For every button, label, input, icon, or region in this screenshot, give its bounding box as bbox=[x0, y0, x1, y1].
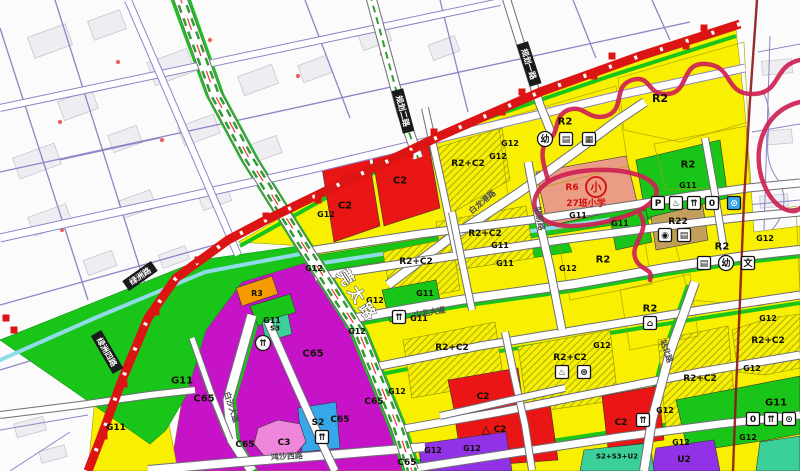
zone-label: S2+S3+U2 bbox=[596, 452, 638, 460]
zone-label: G12 bbox=[743, 364, 761, 373]
railway-tie bbox=[315, 197, 322, 204]
zone-label: G12 bbox=[501, 139, 519, 148]
zone-label: U2 bbox=[677, 455, 691, 465]
railway-tie bbox=[499, 109, 506, 116]
public-toilet-icon-glyph: ⇈ bbox=[690, 199, 698, 209]
zone-label: C2 bbox=[477, 392, 490, 402]
zone-label: G11 bbox=[263, 316, 281, 325]
zone-label: R2 bbox=[681, 160, 696, 171]
zone-label: G12 bbox=[756, 234, 774, 243]
zone-label: G12 bbox=[305, 264, 323, 273]
sanitation-icon-glyph: ▤ bbox=[700, 259, 709, 269]
school-icon-glyph: 小 bbox=[590, 180, 602, 194]
intersection-marker bbox=[160, 138, 164, 142]
zone-label: G11 bbox=[491, 241, 509, 250]
zone-label: G12 bbox=[489, 152, 507, 161]
zone-label: G11 bbox=[569, 211, 587, 220]
railway-tie bbox=[407, 151, 414, 158]
railway-tie bbox=[519, 89, 526, 96]
intersection-marker bbox=[58, 120, 62, 124]
zone-label: G12 bbox=[759, 314, 777, 323]
public-toilet-icon-glyph: ⇈ bbox=[318, 433, 326, 443]
zone-label: G11 bbox=[765, 398, 787, 409]
zone-label: R2 bbox=[643, 304, 658, 315]
railway-tie bbox=[701, 25, 708, 32]
market-icon-glyph: ▦ bbox=[585, 135, 594, 145]
railway-tie bbox=[431, 129, 438, 136]
zone-label: R2+C2 bbox=[468, 229, 502, 239]
zone-label: G12 bbox=[463, 444, 481, 453]
zone-label: R2+C2 bbox=[435, 343, 469, 353]
railway-tie bbox=[591, 73, 598, 80]
zoning-map: 幼▤▦P♨⇈0⊙◉▤▤幼文⌂♨⊛⇈0⇈⊙⇈⇈⇈小△R2R2R2R2R2R2R2+… bbox=[0, 0, 800, 471]
culture-icon-glyph: 文 bbox=[742, 257, 753, 269]
zone-label: C65 bbox=[330, 415, 349, 425]
zone-label: R2 bbox=[715, 242, 730, 253]
zone-label: C3 bbox=[278, 438, 291, 448]
railway-tie bbox=[683, 43, 690, 50]
zone-label: S3 bbox=[270, 324, 280, 332]
intersection-marker bbox=[208, 38, 212, 42]
zone-label: R2+C2 bbox=[399, 257, 433, 267]
zone-label: R2+C2 bbox=[451, 159, 485, 169]
zone-label: C65 bbox=[302, 349, 323, 360]
zone-label: C65 bbox=[193, 394, 214, 405]
railway-tie bbox=[341, 175, 348, 182]
zone-label: R2 bbox=[652, 92, 668, 105]
pump-station-icon-glyph: ◉ bbox=[661, 231, 669, 241]
public-toilet-icon-glyph: ⇈ bbox=[395, 313, 403, 323]
zone-label: R6 bbox=[565, 183, 578, 193]
zoning-map-stage: 幼▤▦P♨⇈0⊙◉▤▤幼文⌂♨⊛⇈0⇈⊙⇈⇈⇈小△R2R2R2R2R2R2R2+… bbox=[0, 0, 800, 471]
zone-label: G12 bbox=[672, 438, 690, 447]
zone-label: G11 bbox=[106, 423, 126, 433]
public-toilet-icon-glyph: ⇈ bbox=[639, 416, 647, 426]
heat-station-icon-glyph: ♨ bbox=[558, 368, 566, 378]
parking-icon-glyph: P bbox=[655, 199, 662, 209]
zone-label: G12 bbox=[593, 341, 611, 350]
public-toilet-icon-glyph: ⇈ bbox=[259, 339, 267, 349]
intersection-marker bbox=[296, 74, 300, 78]
zone-label: G12 bbox=[317, 210, 335, 219]
sanitation-icon-glyph: ▤ bbox=[680, 231, 689, 241]
zone-label: C2 bbox=[494, 425, 507, 435]
railway-tie bbox=[101, 433, 108, 440]
zone-label: R2 bbox=[596, 255, 611, 266]
zone-label: R22 bbox=[668, 217, 687, 227]
zone-label: G12 bbox=[656, 406, 674, 415]
zone-label: C2 bbox=[393, 176, 407, 187]
zone-label: R2+C2 bbox=[553, 353, 587, 363]
railway-tie bbox=[121, 381, 128, 388]
intersection-marker bbox=[116, 60, 120, 64]
zone-label: G12 bbox=[424, 446, 442, 455]
railway-tie bbox=[11, 327, 18, 334]
zone-label: 27班小学 bbox=[566, 197, 606, 209]
zone-label: S2 bbox=[312, 418, 325, 428]
gear-icon-glyph: ⊛ bbox=[580, 368, 588, 378]
zone-label: R3 bbox=[251, 289, 263, 298]
zone-label: G11 bbox=[171, 376, 193, 387]
zone-label: G11 bbox=[679, 181, 697, 190]
housing-icon-glyph: ⌂ bbox=[647, 319, 654, 329]
zone-label: G11 bbox=[416, 289, 434, 298]
zone-label: C65 bbox=[235, 440, 254, 450]
existing-building bbox=[765, 129, 792, 145]
public-toilet-icon-glyph: ⇈ bbox=[767, 415, 775, 425]
railway-tie bbox=[153, 309, 160, 316]
railway-tie bbox=[3, 315, 10, 322]
zone-label: G12 bbox=[559, 264, 577, 273]
zone-label: G12 bbox=[348, 327, 366, 336]
triangle-icon: △ bbox=[482, 423, 491, 436]
zone-label: R2+C2 bbox=[751, 336, 785, 346]
heat-station-icon-glyph: ♨ bbox=[672, 199, 680, 209]
railway-tie bbox=[609, 53, 616, 60]
zone-label: G12 bbox=[388, 387, 406, 396]
zone-label: C65 bbox=[364, 397, 383, 407]
utility-icon-glyph: ⊙ bbox=[730, 199, 738, 209]
zone-label: C2 bbox=[338, 201, 352, 212]
zone-label: G11 bbox=[611, 219, 629, 228]
charging-icon-glyph: 0 bbox=[709, 199, 715, 209]
zone-label: R2 bbox=[558, 117, 573, 128]
zone-label: G11 bbox=[496, 259, 514, 268]
charging-icon-glyph: 0 bbox=[750, 415, 756, 425]
zone-label: C65 bbox=[397, 458, 416, 468]
railway-tie bbox=[263, 213, 270, 220]
railway-tie bbox=[195, 257, 202, 264]
zone-label: R2+C2 bbox=[683, 374, 717, 384]
utility-icon-glyph: ⊙ bbox=[785, 415, 793, 425]
road-name-label: 鸿沙西路 bbox=[271, 450, 304, 462]
zone-label: G12 bbox=[739, 433, 757, 442]
kindergarten-icon-glyph: 幼 bbox=[540, 133, 549, 145]
kindergarten-icon-glyph: 幼 bbox=[721, 257, 730, 269]
zone-label: C2 bbox=[615, 418, 628, 428]
sanitation-icon-glyph: ▤ bbox=[562, 135, 571, 145]
